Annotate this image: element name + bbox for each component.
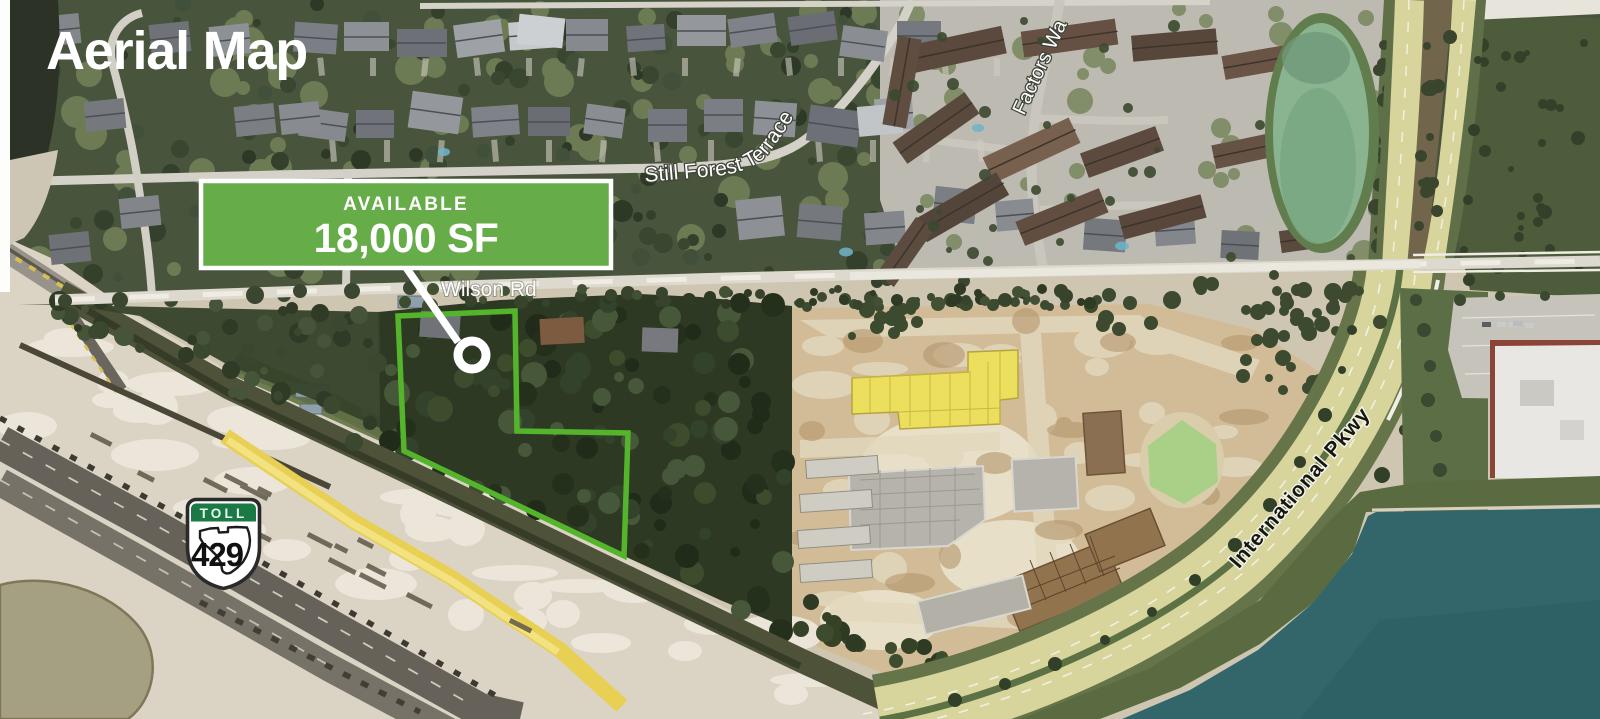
svg-text:429: 429 (191, 536, 244, 573)
svg-text:AVAILABLE: AVAILABLE (343, 194, 469, 215)
svg-text:TOLL: TOLL (200, 506, 248, 521)
svg-text:Aerial Map: Aerial Map (46, 21, 307, 81)
svg-text:18,000 SF: 18,000 SF (314, 215, 499, 261)
svg-text:Wilson Rd: Wilson Rd (441, 278, 537, 301)
